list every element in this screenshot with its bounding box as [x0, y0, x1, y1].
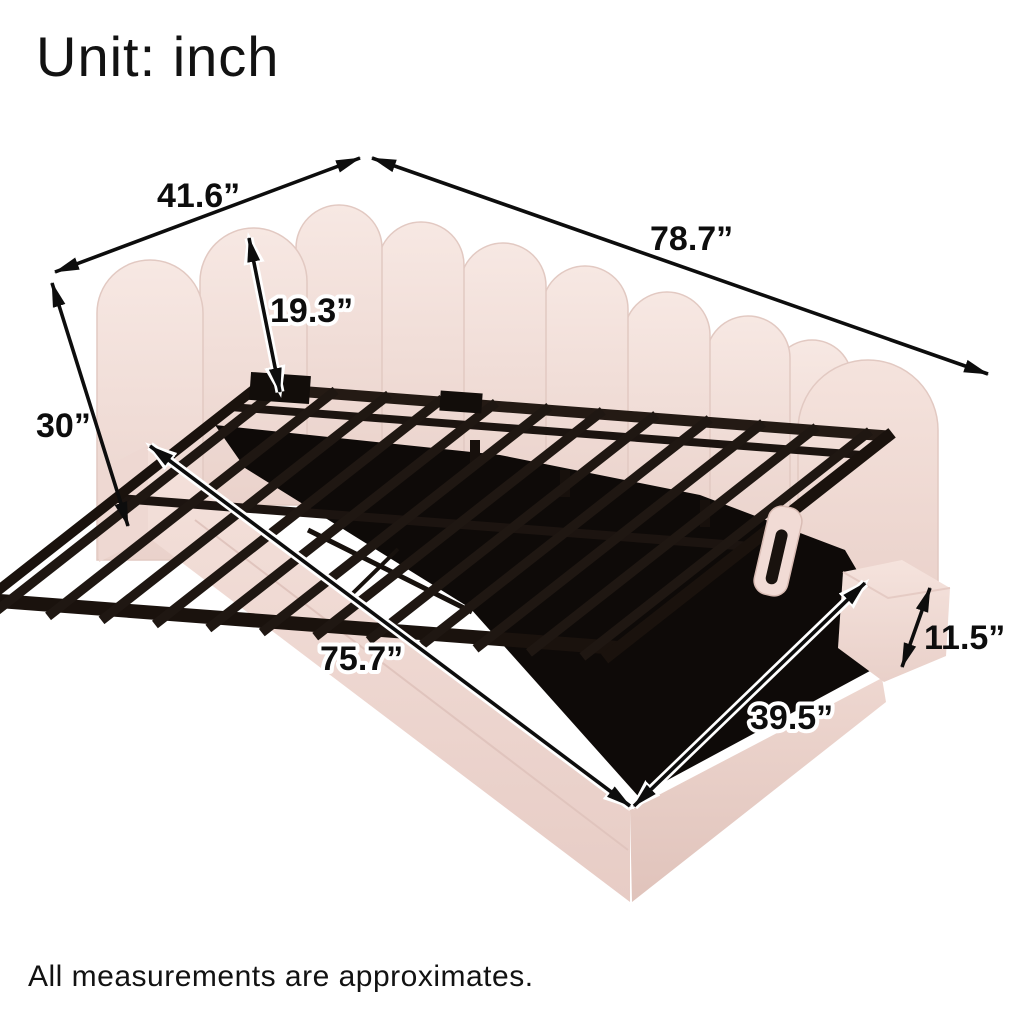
dim-label-backrest-panel-height: 19.3”	[270, 292, 353, 330]
dim-label-side-rail-height: 11.5”	[924, 619, 1005, 657]
dim-label-side-depth: 41.6”	[157, 177, 240, 215]
dim-label-overall-length: 78.7”	[650, 220, 733, 258]
measurement-disclaimer: All measurements are approximates.	[28, 960, 534, 994]
dim-label-bed-width: 39.5”	[750, 699, 833, 737]
dim-label-overall-height: 30”	[36, 407, 91, 445]
bed-dimension-illustration: 41.6” 78.7” 19.3” 30” 75.7” 39.5” 11.5”	[0, 0, 1024, 1024]
dim-label-front-length: 75.7”	[320, 640, 403, 678]
hinge-bracket	[439, 391, 482, 414]
dimension-diagram-page: Unit: inch	[0, 0, 1024, 1024]
